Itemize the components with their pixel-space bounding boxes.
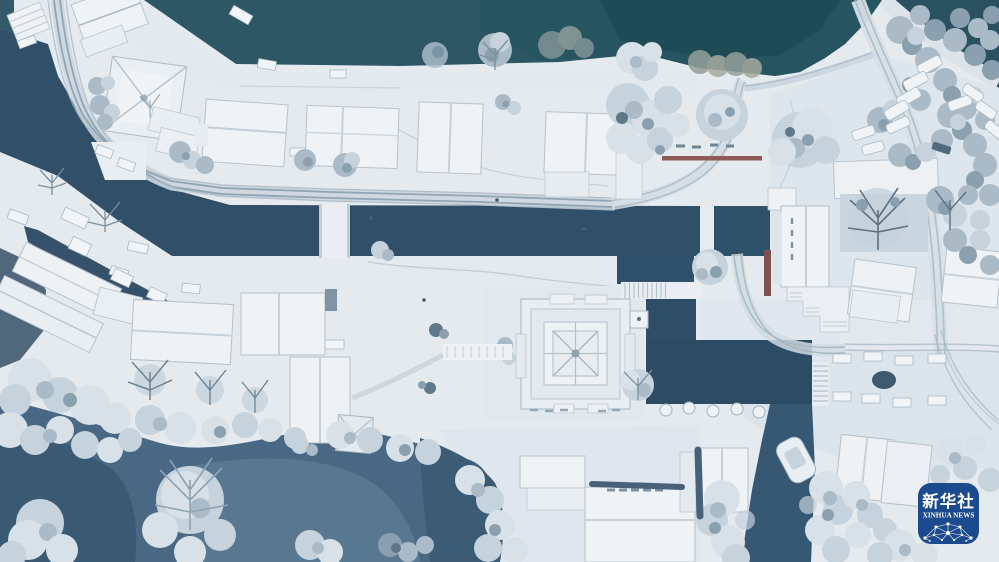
- svg-text:新华社: 新华社: [922, 491, 975, 511]
- svg-text:XINHUA NEWS: XINHUA NEWS: [923, 512, 975, 520]
